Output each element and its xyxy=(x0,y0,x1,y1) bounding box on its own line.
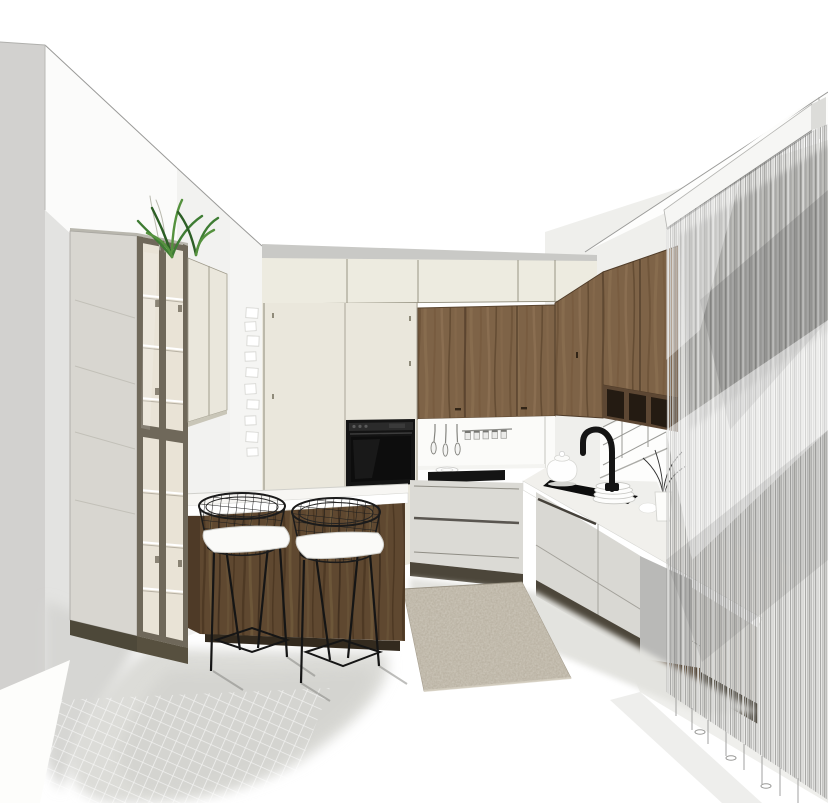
stool-cushion xyxy=(296,532,383,558)
wall-cabinet-cream xyxy=(188,258,227,427)
walnut-upper-cabinets xyxy=(418,305,555,419)
island-side xyxy=(186,516,200,634)
cloth xyxy=(639,503,657,513)
backsplash xyxy=(418,416,555,472)
wood-cabinet-handle xyxy=(455,408,461,410)
spice-rail xyxy=(462,429,512,440)
glass-display-cabinet xyxy=(70,228,188,664)
top-cabinet-row xyxy=(262,258,597,304)
stool-cushion xyxy=(203,526,289,552)
mesh-shadow xyxy=(40,688,330,803)
left-outer-wall xyxy=(0,42,48,778)
string-curtain xyxy=(664,96,828,803)
kitchen-render xyxy=(0,0,828,803)
built-in-oven xyxy=(346,419,415,488)
oven-handle xyxy=(350,433,412,434)
faucet-base xyxy=(605,483,619,491)
oven-display xyxy=(389,424,405,429)
wood-cabinet-handle xyxy=(576,352,578,358)
back-base-drawers xyxy=(410,480,523,588)
wood-cabinet-handle xyxy=(521,407,527,409)
teapot xyxy=(547,459,577,482)
